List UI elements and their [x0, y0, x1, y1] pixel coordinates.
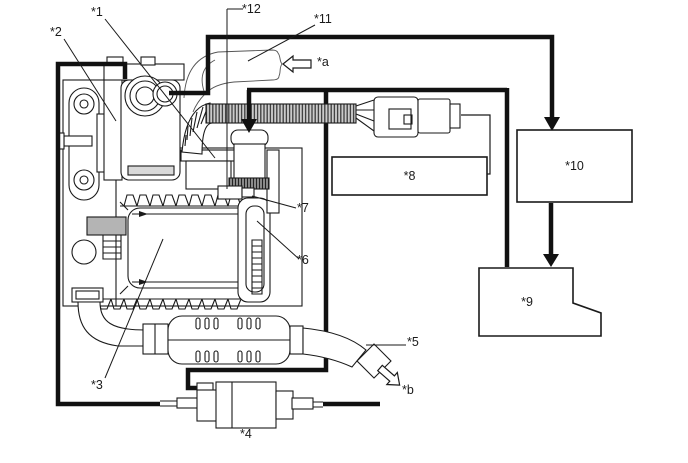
- label-b: *b: [402, 384, 414, 397]
- label-5: *5: [407, 336, 419, 349]
- arrowhead-into-box9: [543, 254, 559, 267]
- vsv-valve: [218, 186, 242, 199]
- engine-mount: [87, 217, 126, 235]
- label-12: *12: [242, 3, 261, 16]
- label-1: *1: [91, 6, 103, 19]
- label-11: *11: [314, 13, 332, 26]
- system-diagram: *1 *2 *3 *4 *5 *6 *7 *11 *12 *a *b *8 *1…: [0, 0, 688, 463]
- leader-11: [248, 25, 315, 61]
- arrowhead-into-box10: [544, 117, 560, 131]
- engine-illustration: [58, 57, 391, 378]
- pump-component: [160, 382, 323, 428]
- corrugated-hose: [206, 104, 356, 123]
- intake-manifold: [181, 150, 236, 189]
- label-7: *7: [297, 202, 309, 215]
- label-3: *3: [91, 379, 103, 392]
- label-2: *2: [50, 26, 62, 39]
- muffler: [143, 316, 303, 364]
- box-10-label: *10: [517, 130, 632, 202]
- diagram-artwork: [0, 0, 688, 463]
- label-a: *a: [317, 56, 329, 69]
- box-8-label: *8: [332, 157, 487, 195]
- airflow-in-arrow: [283, 56, 311, 72]
- label-4: *4: [240, 428, 252, 441]
- box-9-label: *9: [479, 268, 575, 336]
- harness-connector: [356, 97, 460, 137]
- label-6: *6: [297, 254, 309, 267]
- air-intake-duct: [184, 50, 282, 112]
